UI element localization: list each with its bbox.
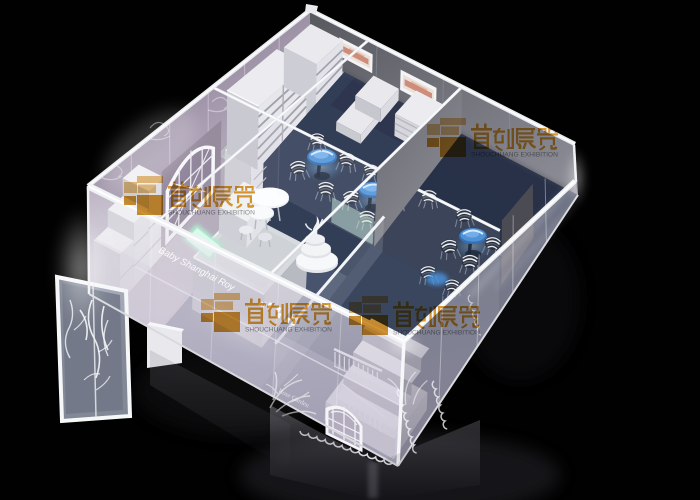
svg-text:SHOUCHUANG EXHIBITION: SHOUCHUANG EXHIBITION [393, 330, 480, 337]
svg-text:SHOUCHUANG EXHIBITION: SHOUCHUANG EXHIBITION [471, 152, 558, 159]
svg-text:SHOUCHUANG EXHIBITION: SHOUCHUANG EXHIBITION [168, 210, 255, 217]
svg-text:SHOUCHUANG EXHIBITION: SHOUCHUANG EXHIBITION [245, 327, 332, 334]
